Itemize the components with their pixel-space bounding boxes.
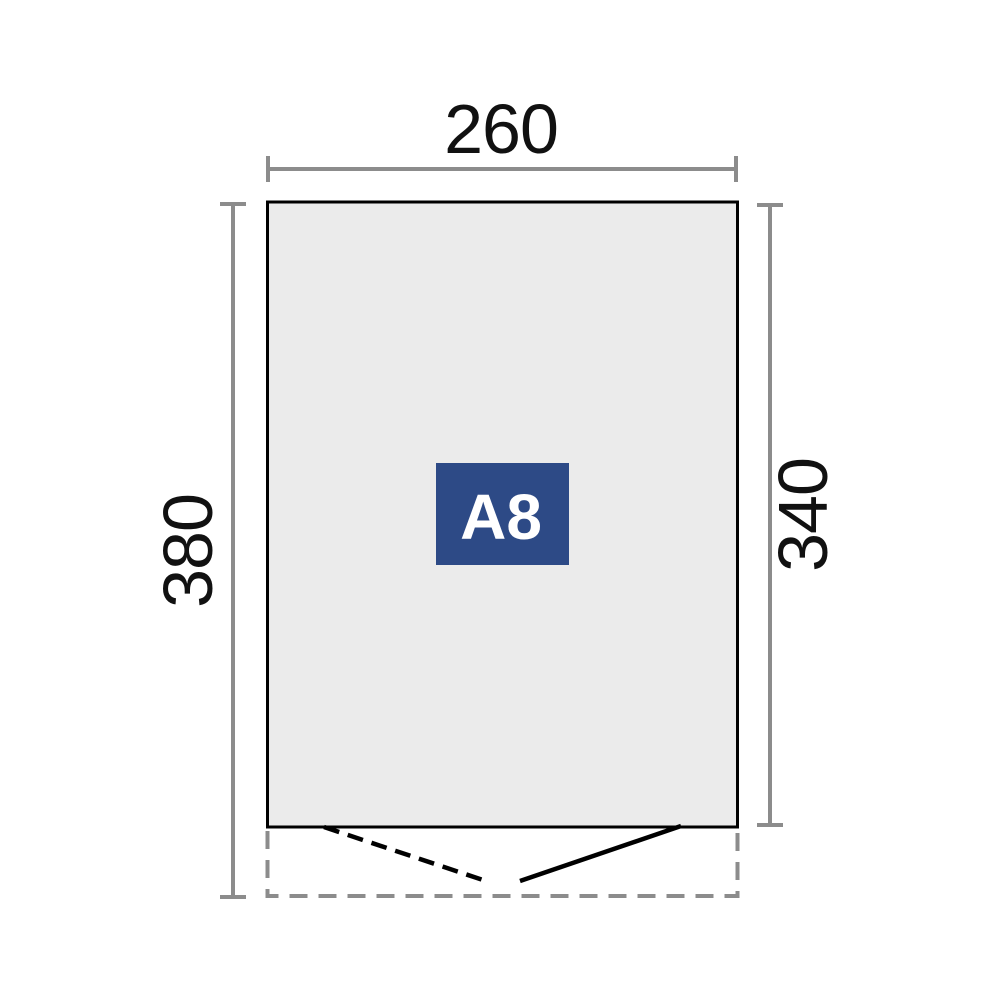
door-wing-solid-line [520, 826, 681, 881]
door-swing-area-outline [268, 831, 738, 896]
dimension-height-left: 380 [149, 204, 246, 897]
model-label-badge: A8 [436, 463, 569, 565]
floor-plan-canvas: 260 380 340 A8 [0, 0, 1000, 1000]
dimension-label-right: 340 [764, 458, 842, 572]
door-wing-dashed-line [324, 827, 486, 881]
dimension-width-top: 260 [268, 90, 736, 182]
dimension-height-right: 340 [757, 205, 842, 825]
dimension-label-top: 260 [444, 90, 558, 168]
dimension-label-left: 380 [149, 494, 227, 608]
shed-floor-plan-diagram: 260 380 340 A8 [0, 0, 1000, 1000]
model-label: A8 [460, 481, 542, 553]
